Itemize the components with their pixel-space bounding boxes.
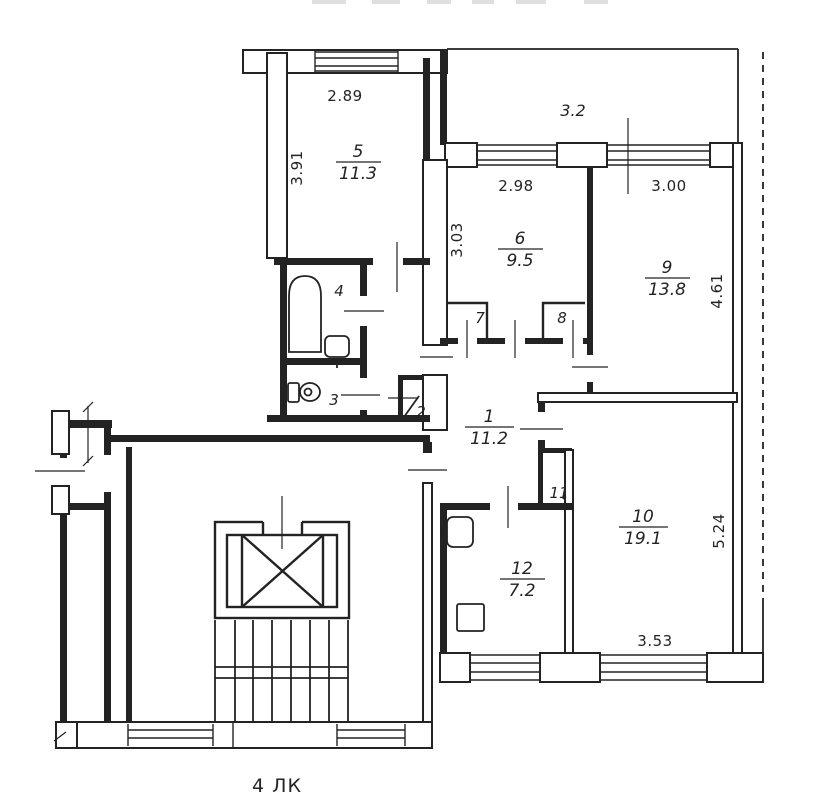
room12-label: 12 7.2 — [500, 559, 545, 601]
dim-room6-depth: 3.03 — [448, 222, 466, 257]
room10-label: 10 19.1 — [619, 507, 668, 549]
floor-plan-page: 2.89 3.91 3.2 2.98 3.00 3.03 4.61 5.24 3… — [0, 0, 827, 799]
dim-room5-width: 2.89 — [327, 87, 362, 105]
room1-area: 11.2 — [470, 429, 508, 449]
cropped-text-smudges — [312, 0, 608, 4]
bathtub — [289, 276, 321, 352]
room10-number: 10 — [632, 507, 654, 527]
room2-number: 2 — [416, 403, 426, 421]
window-room10 — [600, 655, 707, 680]
room5-area: 11.3 — [339, 164, 377, 184]
room6-area: 9.5 — [506, 251, 533, 271]
dim-room5-depth: 3.91 — [288, 150, 306, 185]
stove — [457, 604, 484, 631]
room9-label: 9 13.8 — [645, 258, 690, 300]
dim-balcony-width: 3.2 — [560, 101, 585, 120]
room9-number: 9 — [662, 258, 673, 278]
room8-number: 8 — [557, 309, 567, 327]
room1-label: 1 11.2 — [465, 407, 514, 449]
toilet — [288, 383, 320, 402]
window-room6 — [477, 145, 557, 165]
floor-plan-svg: 2.89 3.91 3.2 2.98 3.00 3.03 4.61 5.24 3… — [0, 0, 827, 799]
window-kitchen — [470, 655, 540, 680]
room4-number: 4 — [334, 282, 344, 300]
room6-number: 6 — [515, 229, 526, 249]
room12-area: 7.2 — [508, 581, 535, 601]
room5-label: 5 11.3 — [336, 142, 381, 184]
room6-label: 6 9.5 — [498, 229, 543, 271]
room5-number: 5 — [353, 142, 364, 162]
staircase-label: 4 ЛК — [252, 775, 302, 797]
window-room9 — [607, 145, 710, 165]
room7-number: 7 — [475, 309, 485, 327]
window-room5 — [315, 51, 398, 72]
dim-room10-width: 3.53 — [637, 632, 672, 650]
room1-number: 1 — [484, 407, 495, 427]
room9-area: 13.8 — [648, 280, 686, 300]
dim-room6-width: 2.98 — [498, 177, 533, 195]
room10-area: 19.1 — [624, 529, 662, 549]
room3-number: 3 — [329, 391, 339, 409]
dim-room9-width: 3.00 — [651, 177, 686, 195]
dim-room10-depth: 5.24 — [710, 513, 728, 548]
room12-number: 12 — [511, 559, 533, 579]
dim-room9-depth: 4.61 — [708, 273, 726, 308]
stairs — [215, 620, 348, 722]
room11-number: 11 — [549, 484, 568, 502]
